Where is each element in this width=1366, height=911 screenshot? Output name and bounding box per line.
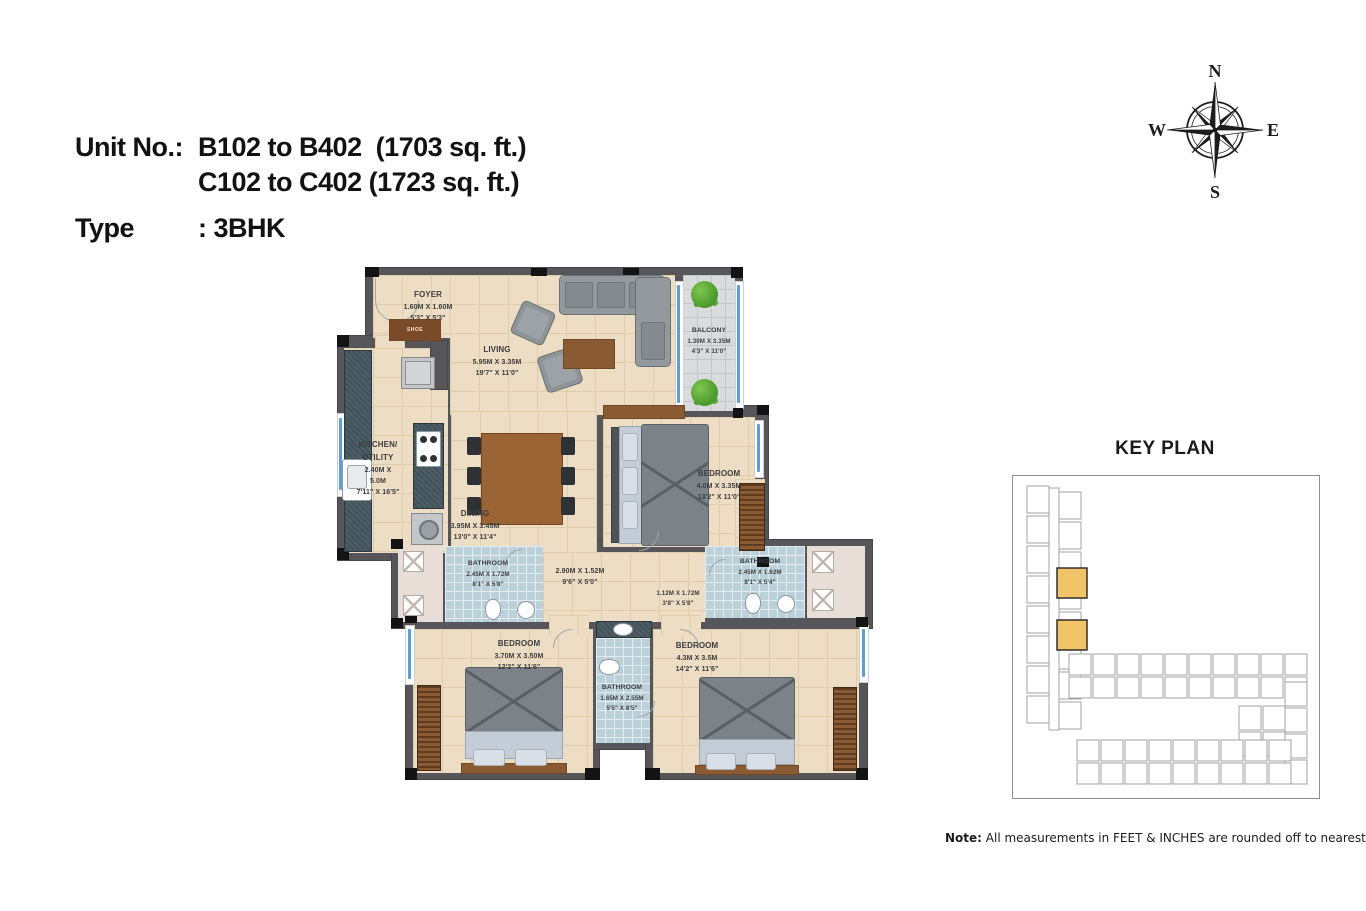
key-plan-highlighted-unit: [1057, 620, 1087, 650]
duct-x-box: [403, 551, 424, 572]
wall-corner: [391, 539, 403, 549]
duct-x-box: [403, 595, 424, 616]
unit-no-label: Unit No.:: [75, 130, 198, 165]
bathroom-2-basin: [777, 595, 795, 613]
room-label-bathroom-2: BATHROOM2.45M X 1.62M8'1" X 5'4": [713, 557, 807, 588]
compass-w: W: [1148, 120, 1166, 140]
bathroom-3-toilet: [599, 659, 620, 675]
dining-chair: [467, 467, 481, 485]
bed-2-pillow: [515, 749, 547, 766]
wall-corner: [405, 768, 417, 780]
bathroom-2-toilet: [745, 593, 761, 614]
wall-corner: [365, 267, 379, 277]
room-label-bedroom-3: BEDROOM4.3M X 3.5M14'2" X 11'6": [649, 640, 745, 675]
key-plan-title: KEY PLAN: [1012, 438, 1318, 460]
unit-line-1: Unit No.:B102 to B402 (1703 sq. ft.): [75, 130, 526, 165]
compass-star-icon: N W E S: [1148, 58, 1282, 203]
wall-corner: [391, 618, 403, 628]
bedroom-2-wardrobe: [417, 685, 441, 771]
key-plan-panel: [1012, 475, 1320, 799]
bed-3-pillow: [746, 753, 776, 770]
type-value: : 3BHK: [198, 211, 285, 246]
key-plan-site-map: [1013, 476, 1319, 798]
unit-line-3: Type: 3BHK: [75, 211, 526, 246]
dining-chair: [561, 437, 575, 455]
room-label-bedroom-2: BEDROOM3.70M X 3.50M12'2" X 11'6": [471, 638, 567, 673]
room-label-passage-2: 1.12M X 1.72M3'8" X 5'8": [641, 589, 715, 609]
bed-1-pillow: [622, 433, 638, 461]
bed-3-pillow: [706, 753, 736, 770]
duct-x-box: [812, 551, 834, 573]
unit-no-value-c: C102 to C402 (1723 sq. ft.): [198, 165, 519, 200]
room-label-kitchen: KITCHEN/UTILITY2.40M X5.0M7'11" X 16'5": [345, 439, 411, 498]
shoe-cabinet-label: SHOE: [390, 327, 440, 333]
room-label-bathroom-3: BATHROOM1.65M X 2.55M5'5" X 8'5": [583, 683, 661, 714]
room-label-dining: DINING3.95M X 3.45M13'0" X 11'4": [427, 508, 523, 543]
measurement-note: Note: All measurements in FEET & INCHES …: [945, 831, 1366, 845]
room-label-passage: 2.90M X 1.52M9'6" X 5'0": [533, 566, 627, 588]
bed-3-duvet: [699, 677, 795, 743]
compass-rose: N W E S: [1148, 58, 1282, 203]
wall-corner: [645, 768, 660, 780]
wall-corner: [733, 408, 743, 418]
balcony-plant-bottom: [691, 379, 718, 406]
wall-corner: [337, 335, 349, 347]
type-label: Type: [75, 211, 198, 246]
note-text: All measurements in FEET & INCHES are ro…: [982, 831, 1366, 845]
room-label-foyer: FOYER1.60M X 1.60M5'3" X 5'3": [381, 289, 475, 324]
dining-chair: [467, 437, 481, 455]
room-label-balcony: BALCONY1.30M X 3.35M4'3" X 11'0": [677, 326, 741, 357]
key-plan-highlighted-unit: [1057, 568, 1087, 598]
wall-corner: [731, 267, 743, 278]
duct-x-box: [812, 589, 834, 611]
sofa-chaise: [635, 277, 671, 367]
compass-n: N: [1209, 61, 1222, 81]
bedroom-3-wardrobe: [833, 687, 857, 771]
wall-corner: [585, 768, 600, 780]
wall-corner: [856, 768, 868, 780]
room-label-living: LIVING5.95M X 3.35M19'7" X 11'0": [449, 344, 545, 379]
bathroom-1-basin: [517, 601, 535, 619]
refrigerator: [401, 357, 435, 389]
bedroom-1-dresser: [603, 405, 685, 419]
entrance-door-leaf: [375, 278, 376, 300]
compass-s: S: [1210, 182, 1220, 202]
unit-title-block: Unit No.:B102 to B402 (1703 sq. ft.) C10…: [75, 130, 526, 246]
bed-2-pillow: [473, 749, 505, 766]
bed-1-pillow: [622, 501, 638, 529]
bed-1-pillow: [622, 467, 638, 495]
bed-2-duvet: [465, 667, 563, 735]
window-bedroom-1: [757, 424, 760, 472]
wall-corner: [856, 617, 868, 627]
floor-plan: SHOE: [335, 265, 875, 780]
dining-chair: [561, 497, 575, 515]
dining-chair: [561, 467, 575, 485]
note-label: Note:: [945, 831, 982, 845]
wall-corner: [757, 405, 769, 415]
floor-plan-page: { "title": { "line1_label": "Unit No.:",…: [0, 0, 1366, 911]
balcony-plant-top: [691, 281, 718, 308]
room-label-bathroom-1: BATHROOM2.45M X 1.72M8'1" X 5'8": [441, 559, 535, 590]
bathroom-1-toilet: [485, 599, 501, 620]
unit-no-value-b: B102 to B402 (1703 sq. ft.): [198, 130, 526, 165]
window-bedroom-2: [408, 629, 411, 679]
bathroom-3-basin: [613, 623, 633, 636]
window-bedroom-3: [862, 629, 865, 677]
wall-corner: [531, 268, 547, 276]
stove: [416, 431, 441, 467]
compass-e: E: [1267, 120, 1279, 140]
room-label-bedroom-1: BEDROOM4.0M X 3.35M13'2" X 11'0": [671, 468, 767, 503]
unit-line-2: C102 to C402 (1723 sq. ft.): [75, 165, 526, 200]
coffee-table: [563, 339, 615, 369]
